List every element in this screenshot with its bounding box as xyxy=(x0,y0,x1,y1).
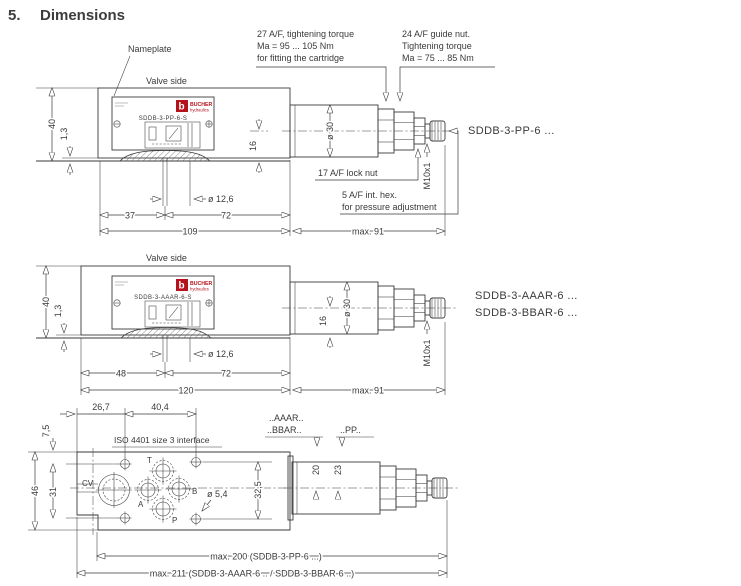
variant-pp: ..PP.. xyxy=(340,425,361,435)
dim-a: 37 xyxy=(125,211,135,221)
dim-bore: 16 xyxy=(318,316,328,326)
dim-max-ar: max. 211 (SDDB-3-AAAR-6 .. / SDDB-3-BBAR… xyxy=(150,569,354,579)
nameplate-text: SDDB-3-AAAR-6-S xyxy=(134,295,192,301)
dim-b: 72 xyxy=(221,369,231,379)
dim-total: 120 xyxy=(178,386,193,396)
dim-a: 26,7 xyxy=(92,402,110,412)
dim-d20: 20 xyxy=(311,465,321,475)
dim-d23: 23 xyxy=(333,465,343,475)
callout-line: Ma = 95 ... 105 Nm xyxy=(257,41,334,51)
drawing-3-top-view: ..AAAR.. ..BBAR.. ..PP.. ISO 4401 size 3… xyxy=(28,402,460,579)
dim-bore: 16 xyxy=(248,141,258,151)
dim-height: 40 xyxy=(41,297,51,307)
dim-seal: 1,3 xyxy=(59,128,69,141)
dim-pin-bore: ø 12,6 xyxy=(208,349,234,359)
variant-bbar: ..BBAR.. xyxy=(267,425,302,435)
datasheet-dimensions-page: b BUCHER hydraulics xyxy=(0,0,741,586)
dim-top: 7,5 xyxy=(41,425,51,438)
dim-seal: 1,3 xyxy=(53,305,63,318)
dim-max: max. 91 xyxy=(352,227,384,237)
dim-diameter: ø 30 xyxy=(325,122,335,140)
lock-nut-label: 17 A/F lock nut xyxy=(318,168,378,178)
model-label: SDDB-3-PP-6 ... xyxy=(468,125,555,137)
valve-side-label: Valve side xyxy=(146,76,187,86)
dim-max: max. 91 xyxy=(352,386,384,396)
dim-pin-bore: ø 12,6 xyxy=(208,194,234,204)
dim-b: 72 xyxy=(221,211,231,221)
section-number: 5. xyxy=(8,7,21,24)
callout-guide-nut: 24 A/F guide nut. Tightening torque Ma =… xyxy=(400,29,495,101)
nameplate-text: SDDB-3-PP-6-S xyxy=(139,116,188,122)
callout-leader xyxy=(400,67,495,101)
drawing-2-side-view: Valve side SDDB-3-AAAR-6-S 40 1,3 16 ø 3… xyxy=(36,253,578,396)
dim-height: 46 xyxy=(30,486,40,496)
nameplate-label: Nameplate xyxy=(128,44,172,54)
port-label-p: P xyxy=(172,516,177,525)
page-title: Dimensions xyxy=(40,7,125,24)
callout-line: Tightening torque xyxy=(402,41,472,51)
model-label: SDDB-3-BBAR-6 ... xyxy=(475,307,578,319)
dim-diameter: ø 30 xyxy=(342,299,352,317)
port-label-t: T xyxy=(147,456,152,465)
callout-line: 24 A/F guide nut. xyxy=(402,29,470,39)
port-label-cv: CV xyxy=(82,479,94,488)
callout-line: for fitting the cartridge xyxy=(257,53,344,63)
port-label-b: B xyxy=(192,487,197,496)
section-title: 5. Dimensions xyxy=(8,7,125,24)
int-hex-label: 5 A/F int. hex. xyxy=(342,190,397,200)
dim-a: 48 xyxy=(116,369,126,379)
dim-rows-right: 32,5 xyxy=(253,481,263,499)
dim-thread: M10x1 xyxy=(422,162,432,189)
port-label-a: A xyxy=(138,500,144,509)
int-hex-label: for pressure adjustment xyxy=(342,202,437,212)
dim-b: 40,4 xyxy=(151,402,169,412)
dim-rows-left: 31 xyxy=(48,487,58,497)
port-cv xyxy=(96,472,132,508)
interface-label: ISO 4401 size 3 interface xyxy=(114,435,210,445)
callout-leader xyxy=(256,67,386,101)
dim-height: 40 xyxy=(47,119,57,129)
callout-line: Ma = 75 ... 85 Nm xyxy=(402,53,474,63)
dimensions-diagram: b BUCHER hydraulics xyxy=(0,0,741,586)
dim-total: 109 xyxy=(182,227,197,237)
callout-line: 27 A/F, tightening torque xyxy=(257,29,354,39)
drawing-1-side-view: Valve side SDDB-3-PP-6-S 40 1,3 16 ø 30 … xyxy=(36,76,555,237)
variant-aaar: ..AAAR.. xyxy=(269,413,304,423)
model-label: SDDB-3-AAAR-6 ... xyxy=(475,290,578,302)
valve-side-label: Valve side xyxy=(146,253,187,263)
dim-bolt: ø 5,4 xyxy=(207,489,228,499)
dim-thread: M10x1 xyxy=(422,339,432,366)
callout-cartridge-torque: 27 A/F, tightening torque Ma = 95 ... 10… xyxy=(256,29,386,101)
dim-max-pp: max. 200 (SDDB-3-PP-6 ...) xyxy=(210,552,322,562)
